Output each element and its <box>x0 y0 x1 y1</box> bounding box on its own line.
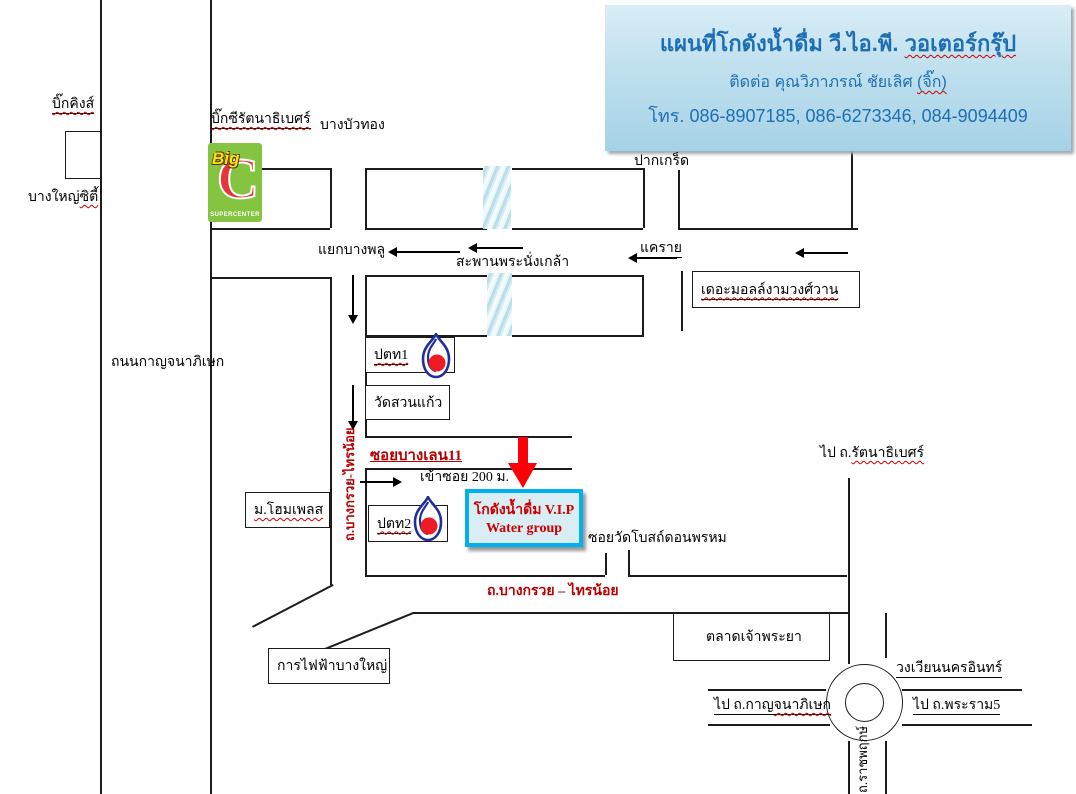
label-soi-bang-len-11: ซอยบางเลน11 <box>370 447 462 466</box>
road-line <box>708 724 830 726</box>
phone-line: โทร. 086-8907185, 086-6273346, 084-90944… <box>648 101 1028 130</box>
road-line <box>851 151 853 228</box>
road-line <box>365 436 572 438</box>
big-c-supercenter-text: SUPERCENTER <box>208 212 262 218</box>
road-line <box>512 275 642 277</box>
label-chao-phraya-market: ตลาดเจ้าพระยา <box>674 626 802 648</box>
destination-name-en: Water group <box>486 521 562 537</box>
road-line <box>885 741 887 794</box>
big-kings-building <box>65 131 101 179</box>
left-arrow-icon <box>390 251 460 253</box>
road-line <box>643 168 645 228</box>
label-electricity-authority: การไฟฟ้าบางใหญ่ <box>269 655 387 677</box>
road-line <box>365 168 487 170</box>
road-line <box>512 168 643 170</box>
label-home-place: ม.โฮมเพลส <box>246 499 323 521</box>
left-arrow-icon <box>797 252 848 254</box>
electricity-authority-box: การไฟฟ้าบางใหญ่ <box>268 648 390 684</box>
road-line <box>642 275 644 337</box>
chao-phraya-river <box>483 166 511 229</box>
road-line <box>512 335 642 337</box>
label-big-c-rattanathibet: บิ๊กซีรัตนาธิเบศร์ <box>211 111 311 129</box>
label-khae-rai: แคราย <box>640 240 682 258</box>
route-map: แผนที่โกดังน้ำดื่ม วี.ไอ.พี. วอเตอร์กรุ๊… <box>0 0 1076 794</box>
road-line <box>708 689 826 691</box>
road-line <box>628 575 847 577</box>
road-line <box>100 0 102 794</box>
label-bang-bua-thong: บางบัวทอง <box>320 117 385 135</box>
road-line <box>678 170 680 228</box>
road-line <box>365 468 367 575</box>
road-line <box>848 741 850 794</box>
label-pak-kret: ปากเกร็ด <box>634 153 689 171</box>
road-line <box>252 584 333 627</box>
left-arrow-icon <box>470 247 523 249</box>
label-bang-yai-city: บางใหญ่ซิตี้ <box>28 189 98 207</box>
road-line <box>902 724 1032 726</box>
label-yaek-bang-phlu: แยกบางพลู <box>318 242 385 260</box>
road-line <box>512 228 643 230</box>
down-arrow-icon <box>352 385 354 428</box>
road-line <box>885 613 887 658</box>
chao-phraya-market-box: ตลาดเจ้าพระยา <box>673 613 830 661</box>
label-nakhon-in-roundabout: วงเวียนนครอินทร์ <box>896 660 1002 678</box>
road-line <box>365 275 487 277</box>
label-enter-soi: เข้าซอย 200 ม. <box>420 469 509 487</box>
road-line <box>365 575 605 577</box>
road-line <box>330 168 332 228</box>
road-line <box>210 277 330 279</box>
big-c-big-text: Big <box>212 149 239 169</box>
label-to-kanchanaphisek: ไป ถ.กาญจนาภิเษก <box>714 697 831 715</box>
label-kanchanaphisek-road: ถนนกาญจนาภิเษก <box>111 354 224 372</box>
road-line <box>681 271 683 331</box>
label-soi-wat-bot: ซอยวัดโบสถ์ดอนพรหม <box>588 530 727 548</box>
destination-box: โกดังน้ำดื่ม V.I.P Water group <box>465 489 583 547</box>
road-line <box>848 478 850 664</box>
left-arrow-icon <box>630 257 677 259</box>
road-line <box>605 553 607 575</box>
the-mall-box: เดอะมอลล์งามวงศ์วาน <box>692 271 860 308</box>
road-line <box>365 168 367 228</box>
label-to-rama5: ไป ถ.พระราม5 <box>913 697 1000 715</box>
destination-name: โกดังน้ำดื่ม V.I.P <box>474 499 574 521</box>
road-line <box>210 228 330 230</box>
label-ratchaphruek-road: ถ.ราชพฤกษ์ <box>855 743 871 793</box>
label-the-mall: เดอะมอลล์งามวงศ์วาน <box>693 279 838 301</box>
label-phra-nangklao-bridge: สะพานพระนั่งเกล้า <box>456 254 569 272</box>
road-line <box>678 228 858 230</box>
label-wat-suan-kaew: วัดสวนแก้ว <box>366 392 442 414</box>
wat-suan-kaew-box: วัดสวนแก้ว <box>365 385 450 420</box>
label-bangkruai-sainoi-road: ถ.บางกรวย – ไทรน้อย <box>487 583 619 601</box>
contact-line: ติดต่อ คุณวิภาภรณ์ ชัยเลิศ (จิ๊ก) <box>729 70 947 95</box>
label-ptt1: ปตท1 <box>366 344 408 366</box>
title-box: แผนที่โกดังน้ำดื่ม วี.ไอ.พี. วอเตอร์กรุ๊… <box>605 5 1071 151</box>
label-ptt2: ปตท2 <box>369 513 411 535</box>
down-arrow-icon <box>352 275 354 322</box>
right-arrow-icon <box>360 481 400 483</box>
roundabout-center <box>845 683 884 722</box>
road-line <box>330 277 332 585</box>
label-bangkruai-sainoi-vertical: ถ.บางกรวย-ไทรน้อย <box>342 431 358 541</box>
ptt-logo-icon <box>410 496 446 542</box>
label-to-rattanathibet: ไป ถ.รัตนาธิเบศร์ <box>820 445 924 463</box>
destination-arrow-icon <box>506 437 540 489</box>
label-big-kings: บิ๊กคิงส์ <box>52 96 94 114</box>
chao-phraya-river <box>487 273 512 336</box>
big-c-logo-icon: C Big SUPERCENTER <box>208 143 262 222</box>
map-title: แผนที่โกดังน้ำดื่ม วี.ไอ.พี. วอเตอร์กรุ๊… <box>660 26 1016 61</box>
road-line <box>628 550 630 575</box>
road-line <box>902 689 1022 691</box>
home-place-box: ม.โฮมเพลส <box>245 492 330 528</box>
ptt-logo-icon <box>418 333 454 379</box>
road-line <box>365 228 487 230</box>
